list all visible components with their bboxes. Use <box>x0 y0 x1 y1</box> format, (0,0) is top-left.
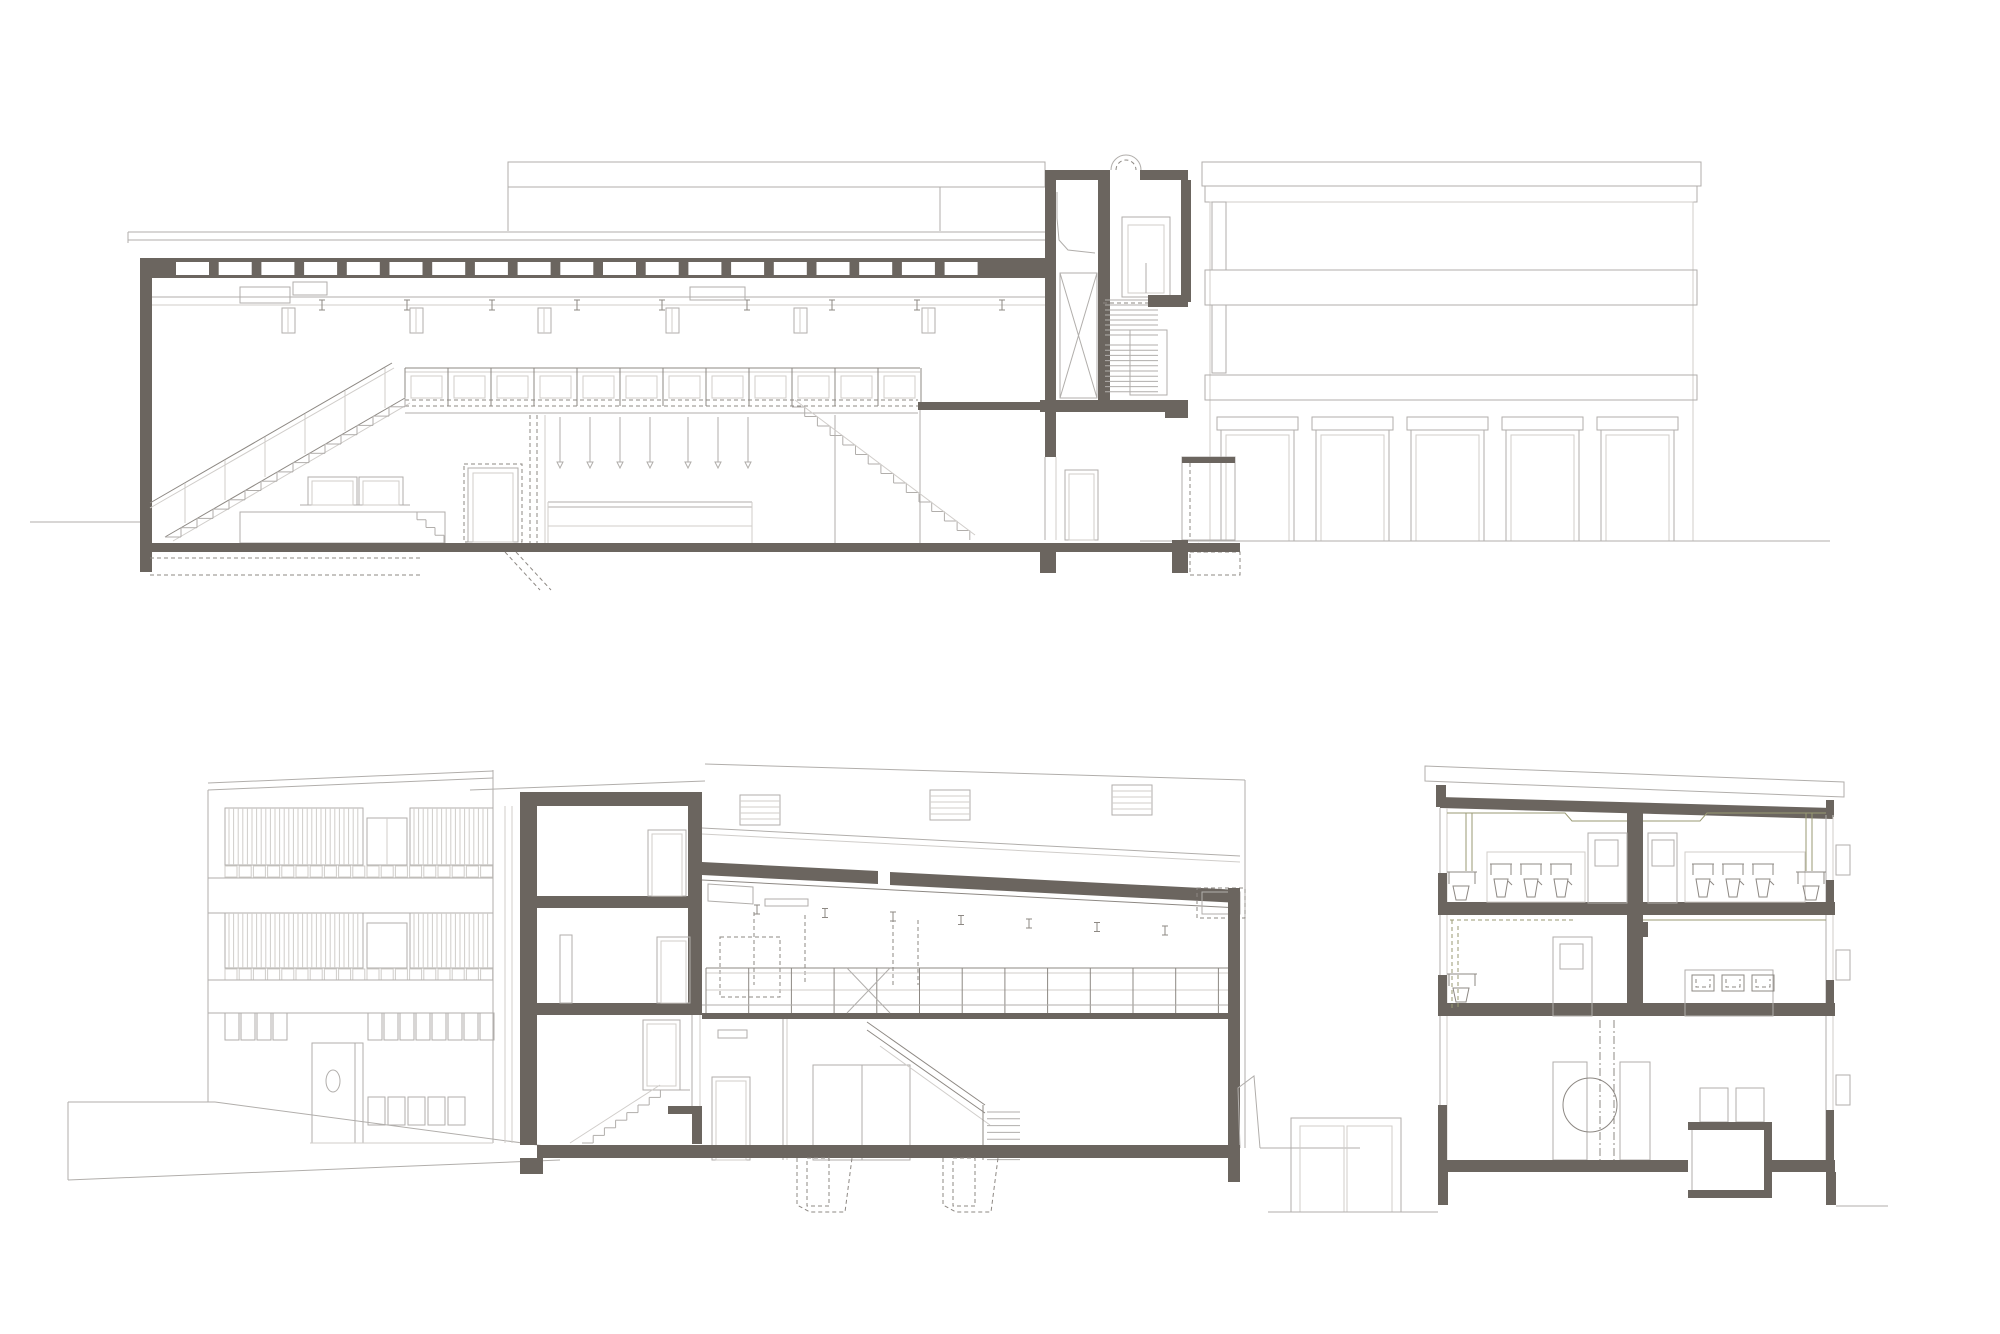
drawing-longitudinal-section <box>30 155 1830 590</box>
sections-canvas <box>0 0 2000 1334</box>
drawing-cross-section-a <box>68 764 1365 1212</box>
architectural-drawing-sheet: Architectural section drawings sheet <box>0 0 2000 1334</box>
drawing-cross-section-b <box>1268 766 1888 1212</box>
